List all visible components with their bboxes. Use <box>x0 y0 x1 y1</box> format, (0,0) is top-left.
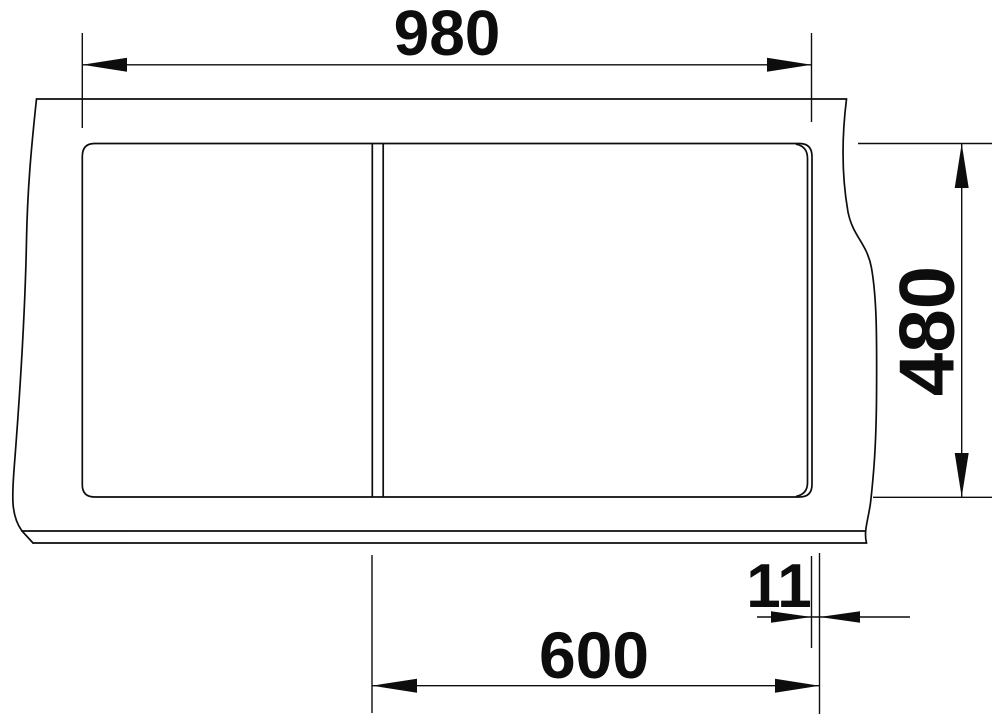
arrow-up-icon <box>955 144 969 189</box>
sink <box>82 144 812 498</box>
dimension-label-overall-depth: 480 <box>883 266 971 396</box>
arrow-right-icon <box>767 58 812 72</box>
sink-dimension-drawing: 980 480 600 11 <box>0 0 1000 720</box>
dimension-rim-overhang: 11 <box>746 552 910 648</box>
arrow-left-icon <box>820 611 861 623</box>
technical-drawing-canvas: 980 480 600 11 <box>0 0 1000 720</box>
arrow-right-icon <box>775 679 820 693</box>
arrow-down-icon <box>955 453 969 497</box>
arrow-left-icon <box>82 58 127 72</box>
sink-rim-outline <box>82 144 812 498</box>
dimension-label-overall-width: 980 <box>394 0 501 69</box>
arrow-left-icon <box>372 679 417 693</box>
countertop-right-break-line <box>843 99 877 543</box>
dimension-label-rim-overhang: 11 <box>746 552 812 621</box>
sink-rim-inner-right-line <box>797 144 808 496</box>
countertop-left-break-line <box>13 99 37 543</box>
dimension-overall-depth: 480 <box>858 144 992 498</box>
dimension-label-divider-to-right-edge: 600 <box>539 618 649 692</box>
dimension-overall-width: 980 <box>82 0 811 128</box>
countertop <box>13 99 877 543</box>
